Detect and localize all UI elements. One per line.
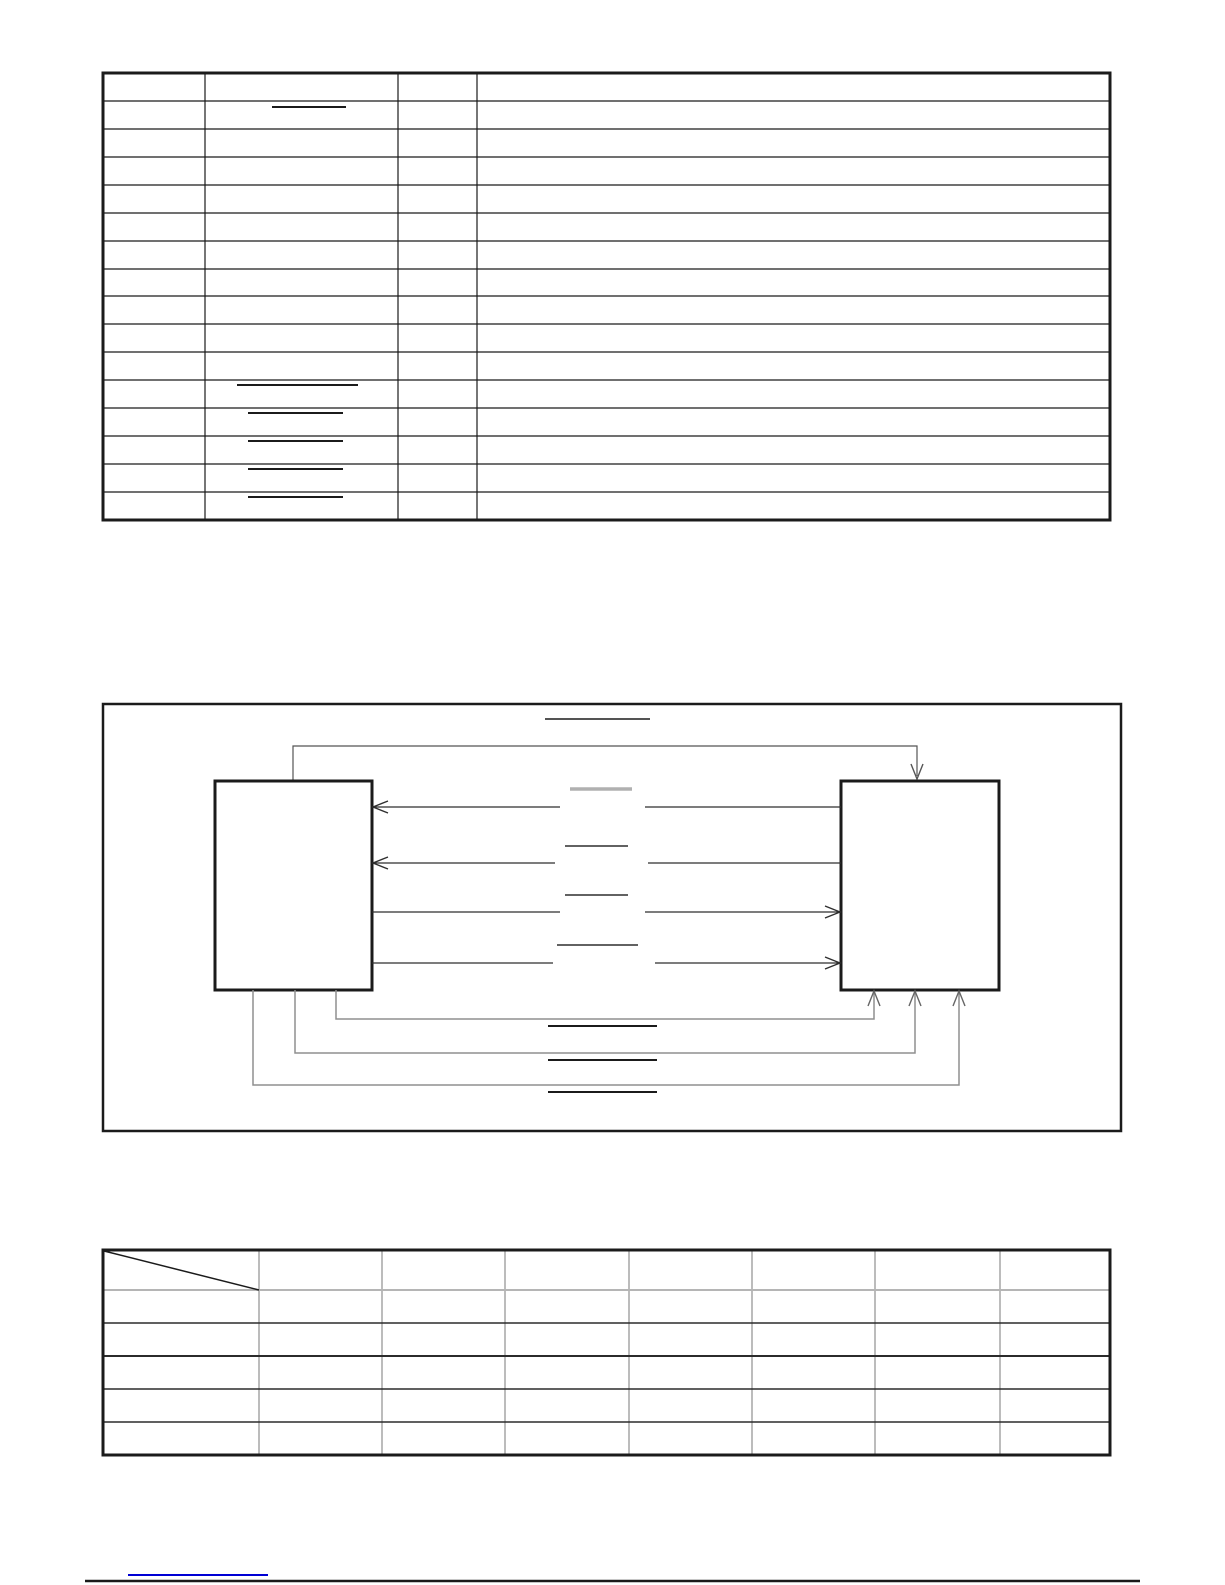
document-page bbox=[0, 0, 1225, 1585]
bottom-connector-line-1 bbox=[336, 990, 874, 1019]
diagram-frame bbox=[103, 704, 1121, 1131]
page-canvas bbox=[0, 0, 1225, 1585]
footer-link[interactable] bbox=[128, 1566, 268, 1576]
bottom-connector-line-3 bbox=[253, 990, 959, 1085]
right-block bbox=[841, 781, 999, 990]
left-block bbox=[215, 781, 372, 990]
top-connector-line bbox=[293, 746, 917, 781]
bottom-connector-line-2 bbox=[295, 990, 915, 1053]
bottom-table-header-diagonal-line bbox=[104, 1251, 259, 1290]
bottom-table-border bbox=[103, 1250, 1110, 1455]
